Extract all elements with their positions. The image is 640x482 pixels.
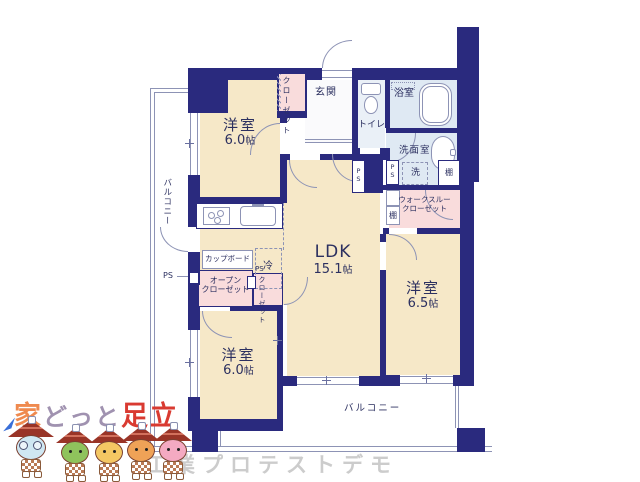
room-bedroom2-label: 洋室 6.5帖: [386, 280, 460, 312]
entrance-step: [305, 139, 352, 143]
washroom-label: 洗面室: [399, 146, 431, 157]
wall-bottom-left: [188, 419, 283, 431]
mascot-character: [8, 420, 54, 478]
balcony-bottom-label: バルコニー: [344, 404, 401, 415]
shelf-washroom-label: 棚: [445, 168, 453, 177]
mascot-face: [95, 441, 123, 464]
wall-bedroom1-right-b: [280, 155, 287, 203]
room-ldk-label: LDK 15.1帖: [295, 243, 371, 277]
closet-mid-label: クローゼット: [257, 276, 267, 305]
mascot-face: [61, 441, 89, 464]
bathtub-inner: [422, 86, 449, 123]
kitchen-faucet: [252, 204, 264, 206]
ps-hall-label: PS: [354, 167, 361, 183]
mascot-foot: [100, 475, 108, 482]
wall-bedroom3-right: [277, 311, 283, 419]
wall-tick: [322, 376, 331, 385]
ps-kitchen-label: PS: [163, 271, 173, 280]
toilet-tank-icon: [361, 83, 381, 95]
window-entrance-threshold: [322, 70, 352, 78]
mascot-chimney: [72, 424, 80, 432]
washer-label: 洗: [411, 168, 420, 178]
wall-right: [460, 80, 474, 386]
room-bedroom1-label: 洋室 6.0帖: [200, 117, 280, 149]
balcony-left-label: バルコニー: [161, 178, 171, 226]
toilet-bowl-icon: [364, 96, 378, 114]
mascot-eye: [177, 448, 180, 451]
mascot-eye: [103, 450, 106, 453]
mascot-glasses-icon: [18, 441, 43, 451]
walkthrough-closet-label: ウォークスルー クローゼット: [389, 196, 460, 213]
mascot-foot: [22, 471, 30, 478]
wall-toilet-bath: [385, 80, 390, 128]
toilet-label: トイレ: [358, 120, 385, 130]
mascot-foot: [176, 473, 184, 480]
ps-kitchen-leader: [177, 276, 188, 277]
closet-top-label: クローゼット: [281, 76, 292, 111]
entrance-label: 玄関: [315, 87, 337, 99]
balcony-left-inner-rail: [154, 92, 188, 446]
bathroom-label: 浴室: [394, 88, 414, 100]
mascot-foot: [144, 473, 152, 480]
wall-tick: [273, 336, 282, 345]
wall-bedroom2-bottom-a: [383, 375, 400, 386]
mascot-character: [56, 428, 94, 480]
entrance-door-arc: [322, 40, 352, 68]
stove-burner: [217, 210, 224, 217]
wall-wtc-bottom-b: [417, 228, 460, 234]
ps-closet-label: PS: [255, 265, 264, 273]
cupboard-label: カップボード: [202, 255, 253, 264]
door-gap-balcony: [188, 227, 200, 252]
pillar-bottom-right: [457, 428, 485, 452]
mascot-character: [154, 426, 192, 478]
wall-tick: [185, 358, 194, 367]
kitchen-boundary-dashed: [283, 203, 284, 250]
mascot-eye: [79, 450, 82, 453]
mascot-chimney: [170, 422, 178, 430]
room-bedroom3-label: 洋室 6.0帖: [200, 347, 277, 379]
wall-tick: [422, 374, 431, 383]
mascot-eye: [145, 448, 148, 451]
mascot-eye: [135, 448, 138, 451]
mascot-chimney: [106, 424, 114, 432]
mascot-chimney: [138, 422, 146, 430]
wtc-shelf-label: 棚: [389, 211, 397, 220]
wall-hall-block: [365, 160, 383, 193]
balcony-bottom-right-rail: [455, 385, 459, 428]
mascot-chimney: [28, 416, 36, 424]
mascot-foot: [132, 473, 140, 480]
open-closet-label: オープン クローゼット: [198, 276, 253, 294]
mascot-foot: [66, 475, 74, 482]
wall-ldk-bedroom2-a: [380, 234, 386, 242]
mascot-eye: [167, 448, 170, 451]
mascot-eye: [69, 450, 72, 453]
mascot-foot: [34, 471, 42, 478]
ps-washroom-label: PS: [388, 163, 395, 179]
wall-top-b: [352, 68, 458, 80]
mascot-face: [159, 439, 187, 462]
stove-burner: [214, 217, 221, 224]
wall-tick: [185, 139, 194, 148]
sink-faucet: [450, 149, 456, 156]
fridge-label: 冷: [263, 261, 273, 273]
mascot-foot: [164, 473, 172, 480]
kitchen-sink-icon: [240, 206, 276, 226]
mascot-face: [127, 439, 155, 462]
wall-bedroom2-bottom-b: [453, 375, 474, 386]
wall-entrance-toilet: [352, 80, 358, 154]
wall-left-1: [188, 68, 200, 113]
mascot-foot: [112, 475, 120, 482]
wall-ldk-bottom-b: [359, 376, 383, 386]
wall-ldk-bottom-a: [283, 376, 297, 386]
mascot-eye: [113, 450, 116, 453]
mascot-foot: [78, 475, 86, 482]
